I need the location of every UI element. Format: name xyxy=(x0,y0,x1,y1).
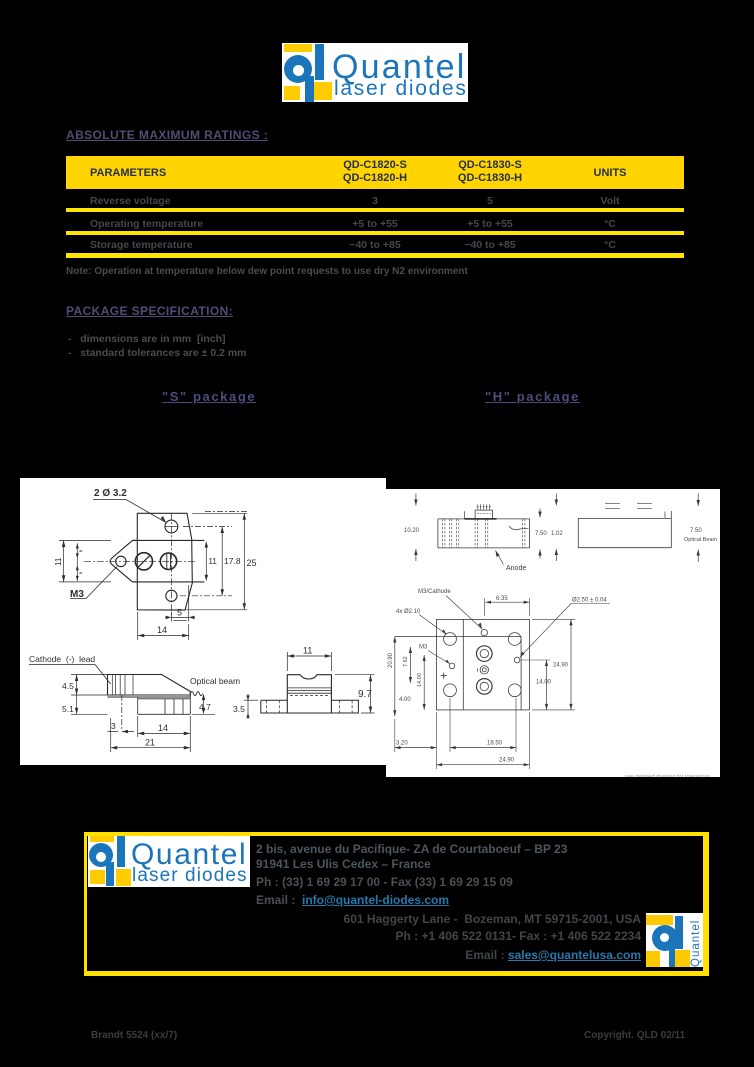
svg-text:14: 14 xyxy=(158,723,168,733)
svg-text:7.50: 7.50 xyxy=(535,531,547,537)
svg-text:Cathode (-) lead: Cathode (-) lead xyxy=(29,654,95,664)
svg-text:Optical Beam: Optical Beam xyxy=(684,537,717,543)
svg-text:24.90: 24.90 xyxy=(499,758,515,764)
svg-text:3.20: 3.20 xyxy=(396,741,408,747)
svg-text:7.50: 7.50 xyxy=(690,528,702,534)
svg-text:5: 5 xyxy=(177,608,182,618)
svg-text:=: = xyxy=(79,549,83,555)
svg-text:14.00: 14.00 xyxy=(536,680,552,686)
svg-text:11: 11 xyxy=(54,557,63,566)
svg-text:4.00: 4.00 xyxy=(399,697,411,703)
svg-text:11: 11 xyxy=(209,557,218,566)
svg-text:Ø2.50 ± 0.04: Ø2.50 ± 0.04 xyxy=(572,598,607,604)
svg-text:7.62: 7.62 xyxy=(403,656,409,667)
svg-text:14: 14 xyxy=(157,625,167,635)
svg-text:Optical beam: Optical beam xyxy=(190,676,240,686)
svg-text:14.00: 14.00 xyxy=(417,673,423,687)
svg-text:2 Ø 3.2: 2 Ø 3.2 xyxy=(94,488,127,499)
svg-text:21: 21 xyxy=(145,738,155,748)
svg-text:3.5: 3.5 xyxy=(233,704,245,714)
svg-text:10.20: 10.20 xyxy=(404,528,420,534)
svg-text:M3/Cathode: M3/Cathode xyxy=(418,589,451,595)
svg-text:18.50: 18.50 xyxy=(487,741,503,747)
svg-text:4x Ø2.10: 4x Ø2.10 xyxy=(396,609,421,615)
svg-text:17.8: 17.8 xyxy=(224,556,241,566)
svg-text:20.90: 20.90 xyxy=(388,652,394,668)
svg-text:3: 3 xyxy=(111,721,116,731)
svg-text:M3: M3 xyxy=(419,645,428,651)
svg-text:4.5: 4.5 xyxy=(62,681,74,691)
svg-text:25: 25 xyxy=(247,558,257,568)
svg-text:24.90: 24.90 xyxy=(553,663,569,669)
svg-text:9.7: 9.7 xyxy=(358,689,372,700)
svg-text:Anode: Anode xyxy=(506,565,526,572)
svg-text:6.35: 6.35 xyxy=(496,596,508,602)
svg-text:5.1: 5.1 xyxy=(62,704,74,714)
svg-text:11: 11 xyxy=(303,646,312,656)
svg-text:=: = xyxy=(79,571,83,577)
svg-text:see detailed drawing for toler: see detailed drawing for tolerances xyxy=(625,774,711,777)
svg-text:1.02: 1.02 xyxy=(551,531,563,537)
svg-text:4.7: 4.7 xyxy=(199,702,211,712)
